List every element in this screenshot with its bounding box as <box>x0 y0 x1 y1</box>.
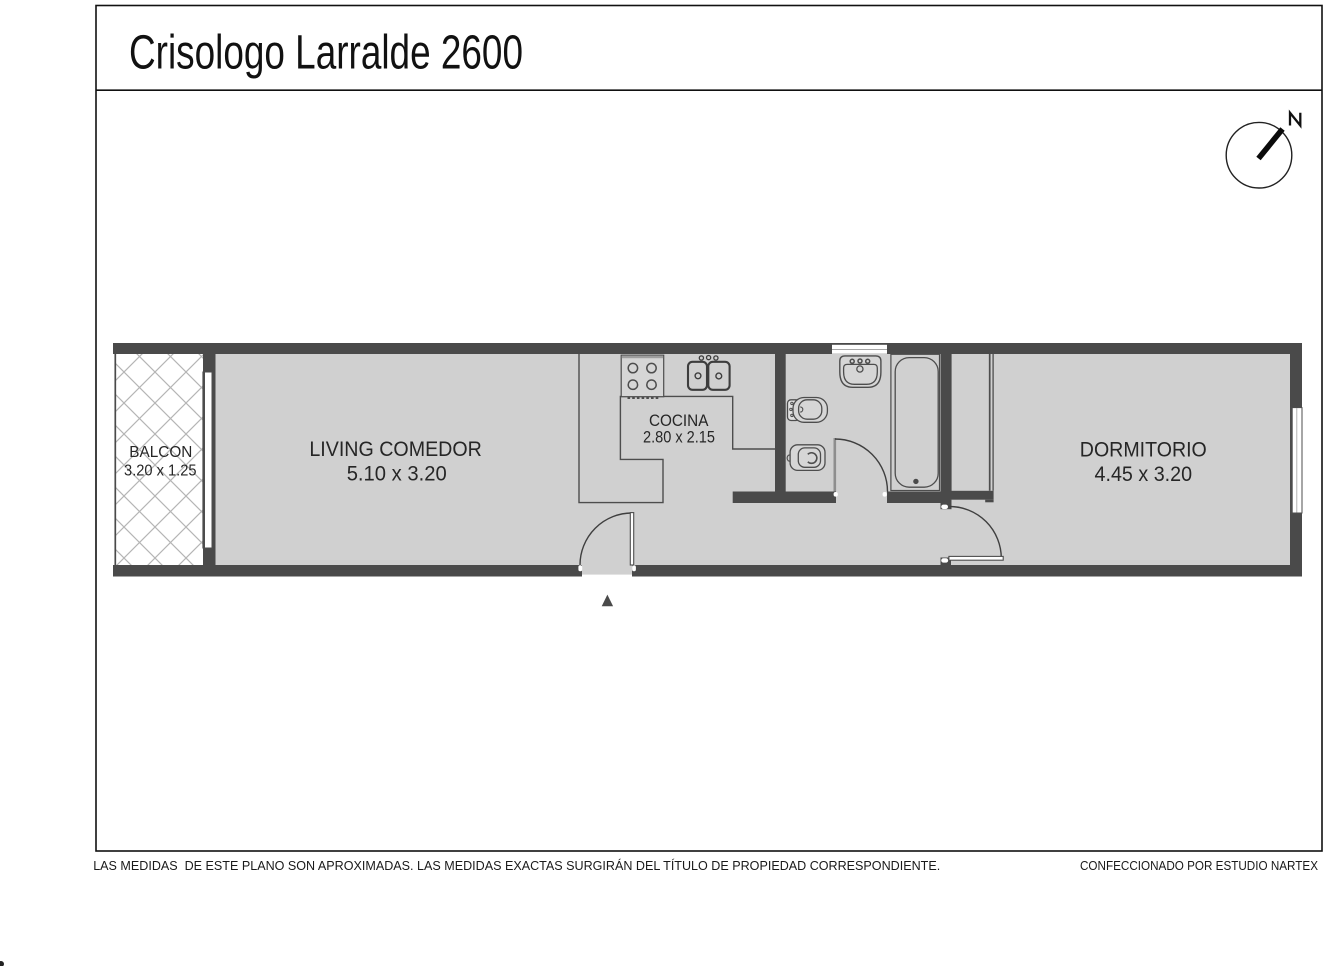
svg-text:LAS MEDIDAS DE ESTE PLANO SON: LAS MEDIDAS DE ESTE PLANO SON APROXIMADA… <box>93 858 940 873</box>
svg-text:2.80 x 2.15: 2.80 x 2.15 <box>643 429 715 447</box>
svg-text:CONFECCIONADO POR ESTUDIO NART: CONFECCIONADO POR ESTUDIO NARTEX <box>1080 858 1318 873</box>
svg-text:4.45 x 3.20: 4.45 x 3.20 <box>1095 462 1193 486</box>
svg-text:LIVING COMEDOR: LIVING COMEDOR <box>309 438 482 461</box>
svg-text:Crisologo Larralde 2600: Crisologo Larralde 2600 <box>129 27 523 80</box>
svg-text:3.20 x 1.25: 3.20 x 1.25 <box>124 462 197 479</box>
svg-text:DORMITORIO: DORMITORIO <box>1080 437 1207 461</box>
svg-text:5.10 x 3.20: 5.10 x 3.20 <box>347 463 447 486</box>
svg-text:BALCON: BALCON <box>129 444 192 461</box>
svg-text:COCINA: COCINA <box>649 411 709 430</box>
